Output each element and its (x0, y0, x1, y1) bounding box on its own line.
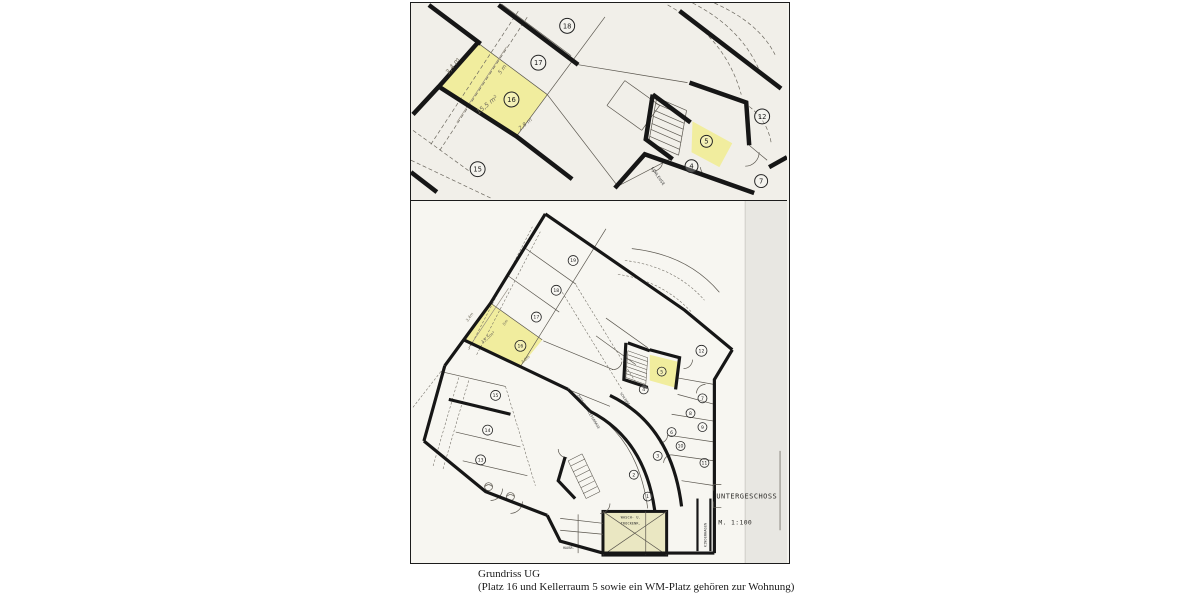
room-number-10: 10 (676, 442, 685, 451)
svg-text:8: 8 (689, 411, 692, 417)
svg-text:1: 1 (646, 494, 649, 500)
untergeschoss-label: UNTERGESCHOSS (716, 493, 777, 501)
room-number-2: 2 (629, 470, 638, 479)
scan-paper-bottom (411, 201, 787, 563)
svg-text:15: 15 (473, 166, 482, 174)
room-number-16: 16 (504, 92, 519, 107)
svg-text:10: 10 (678, 444, 684, 450)
svg-text:12: 12 (758, 113, 767, 121)
svg-text:6: 6 (670, 430, 673, 436)
room-number-8: 8 (686, 409, 695, 418)
paper-edge-band (745, 201, 787, 563)
room-number-17: 17 (531, 312, 541, 322)
svg-text:17: 17 (533, 315, 539, 321)
floorplan-full-photo: UNTERGESCHOSS M. 1:100 WASCH- U. TROCKEN… (411, 200, 787, 563)
svg-text:4: 4 (642, 387, 645, 393)
room-number-18: 18 (560, 18, 575, 33)
svg-text:2: 2 (632, 472, 635, 478)
svg-text:7: 7 (759, 177, 763, 185)
svg-text:18: 18 (553, 288, 559, 294)
figure-caption: Grundriss UG (Platz 16 und Kellerraum 5 … (478, 568, 794, 594)
svg-text:13: 13 (478, 458, 484, 464)
room-number-17: 17 (531, 55, 546, 70)
caption-line-2: (Platz 16 und Kellerraum 5 sowie ein WM-… (478, 581, 794, 594)
room-number-19: 19 (568, 256, 578, 266)
room-number-7: 7 (755, 175, 768, 188)
svg-text:9: 9 (701, 425, 704, 431)
svg-text:15: 15 (493, 393, 499, 399)
room-number-5: 5 (700, 135, 712, 147)
svg-text:17: 17 (534, 59, 543, 67)
room-number-9: 9 (698, 423, 707, 432)
svg-text:18: 18 (563, 22, 572, 30)
wash-room-label-2: TROCKENR. (621, 521, 641, 525)
room-number-15: 15 (491, 390, 501, 400)
room-number-7: 7 (698, 394, 707, 403)
room-number-14: 14 (483, 425, 493, 435)
floorplan-figure: 3,4 m 5 m 15,5 m² 2,8 m SCHLEUSE 18 17 1… (410, 2, 790, 564)
room-number-16: 16 (515, 340, 526, 351)
wash-room-label-1: WASCH- U. (621, 515, 641, 519)
svg-text:16: 16 (507, 96, 516, 104)
svg-text:11: 11 (702, 461, 708, 467)
room-number-4: 4 (639, 385, 648, 394)
svg-text:5: 5 (660, 369, 663, 375)
hausr-label: HAUSR. (563, 546, 574, 550)
caption-line-1: Grundriss UG (478, 568, 794, 581)
scale-label: M. 1:100 (718, 519, 752, 526)
svg-text:7: 7 (701, 396, 704, 402)
svg-text:4: 4 (689, 163, 693, 171)
room-number-12: 12 (755, 109, 770, 124)
room-number-1: 1 (643, 492, 652, 501)
room-number-5: 5 (657, 367, 666, 376)
kinderwagen-label: KINDERWAGEN (703, 523, 707, 547)
room-number-12: 12 (696, 345, 707, 356)
svg-text:16: 16 (518, 343, 524, 349)
svg-text:19: 19 (570, 258, 576, 264)
svg-text:5: 5 (704, 138, 708, 146)
svg-text:12: 12 (699, 348, 705, 354)
room-number-11: 11 (700, 458, 709, 467)
room-number-3: 3 (653, 451, 662, 460)
room-number-13: 13 (476, 455, 486, 465)
svg-text:14: 14 (485, 428, 491, 434)
room-number-4: 4 (685, 160, 698, 173)
svg-text:3: 3 (656, 454, 659, 460)
floorplan-crop-photo: 3,4 m 5 m 15,5 m² 2,8 m SCHLEUSE 18 17 1… (411, 3, 787, 200)
room-number-15: 15 (470, 162, 485, 177)
room-number-18: 18 (551, 285, 561, 295)
document-page: 3,4 m 5 m 15,5 m² 2,8 m SCHLEUSE 18 17 1… (0, 0, 1200, 600)
room-number-6: 6 (667, 428, 676, 437)
